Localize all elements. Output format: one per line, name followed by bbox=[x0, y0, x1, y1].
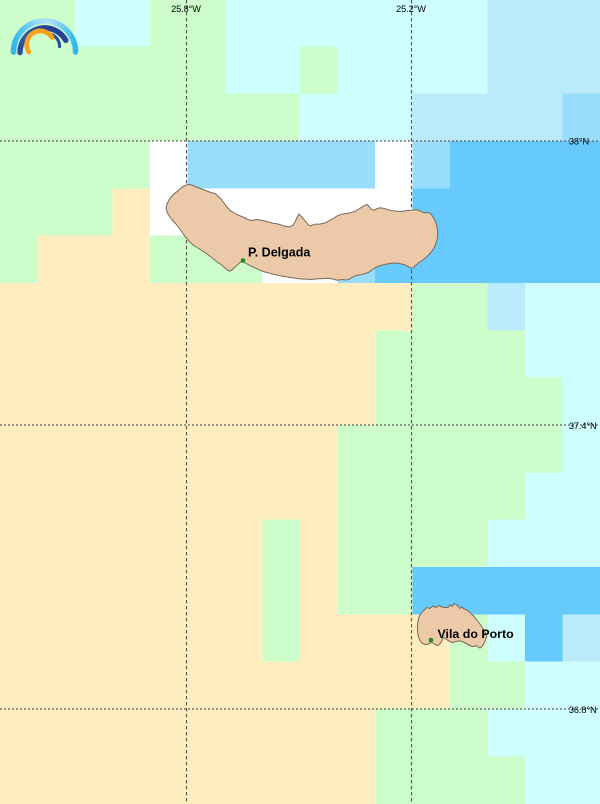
svg-text:25.8°W: 25.8°W bbox=[171, 4, 201, 14]
svg-text:36.8°N: 36.8°N bbox=[569, 705, 597, 715]
svg-text:25.2°W: 25.2°W bbox=[396, 4, 426, 14]
svg-text:37.4°N: 37.4°N bbox=[569, 421, 597, 431]
svg-text:38°N: 38°N bbox=[569, 137, 589, 147]
svg-text:Vila do Porto: Vila do Porto bbox=[438, 627, 515, 641]
svg-text:P. Delgada: P. Delgada bbox=[248, 245, 311, 259]
